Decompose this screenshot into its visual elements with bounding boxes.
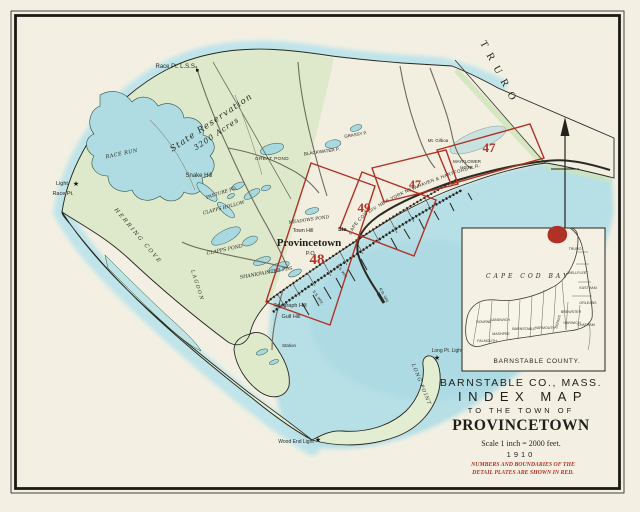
label-race-pt-lss: Race Pt. L.S.S. bbox=[155, 64, 196, 70]
title-index-map: INDEX MAP bbox=[458, 389, 588, 404]
label-telegraph-hill: Telegraph Hill bbox=[273, 303, 306, 309]
title-subtitle: TO THE TOWN OF bbox=[468, 406, 574, 415]
label-town-hill: Town Hill bbox=[293, 228, 314, 234]
wood-end-light-icon: ★ bbox=[315, 436, 321, 444]
label-light: Light bbox=[56, 181, 68, 187]
title-year: 1910 bbox=[507, 450, 536, 459]
map-canvas: CAPE COD DIV. NEW YORK NEW HAVEN & HARTF… bbox=[0, 0, 640, 512]
plate-47a-number: 47 bbox=[483, 140, 497, 155]
label-long-pt-light: Long Pt. Light bbox=[432, 348, 463, 354]
inset-town-wellfleet: WELLFLEET bbox=[568, 271, 590, 275]
title-note-2: DETAIL PLATES ARE SHOWN IN RED. bbox=[471, 470, 574, 476]
label-provincetown: Provincetown bbox=[277, 237, 342, 249]
label-mayflower-1: MAYFLOWER bbox=[453, 159, 481, 164]
title-note-1: NUMBERS AND BOUNDARIES OF THE bbox=[470, 462, 575, 468]
inset-provincetown-highlight bbox=[548, 226, 568, 243]
inset-town-harwich: HARWICH bbox=[563, 321, 581, 325]
title-town: PROVINCETOWN bbox=[452, 417, 589, 434]
plate-47b-number: 47 bbox=[409, 177, 421, 191]
inset-town-mashpee: MASHPEE bbox=[492, 332, 510, 336]
label-great-pond: GREAT POND bbox=[255, 156, 289, 161]
race-point-light-icon: ★ bbox=[73, 180, 79, 188]
inset-town-yarmouth: YARMOUTH bbox=[535, 326, 556, 330]
label-mayflower-2: HGTS. bbox=[460, 165, 473, 170]
label-race-pt: Race Pt. bbox=[52, 191, 74, 197]
inset-town-falmouth: FALMOUTH bbox=[477, 339, 497, 343]
label-po: P.O. bbox=[306, 251, 317, 257]
inset-county-label: BARNSTABLE COUNTY. bbox=[493, 358, 580, 365]
inset-town-sandwich: SANDWICH bbox=[490, 318, 510, 322]
inset-bay-label: CAPE COD BAY bbox=[486, 273, 570, 280]
title-county: BARNSTABLE CO., MASS. bbox=[440, 377, 602, 389]
inset-map: CAPE COD BAY TRURO WELLFLEET EASTHAM ORL… bbox=[462, 226, 605, 371]
inset-town-orleans: ORLEANS bbox=[579, 301, 597, 305]
inset-town-bourne: BOURNE bbox=[476, 320, 492, 324]
inset-town-brewster: BREWSTER bbox=[561, 310, 582, 314]
long-point-light-icon: ★ bbox=[434, 354, 440, 362]
map-sheet: CAPE COD DIV. NEW YORK NEW HAVEN & HARTF… bbox=[0, 0, 640, 512]
inset-town-eastham: EASTHAM bbox=[579, 286, 596, 290]
label-gull-hill: Gull Hill bbox=[282, 314, 301, 320]
inset-town-barnstable: BARNSTABLE bbox=[512, 327, 536, 331]
title-scale: Scale 1 inch = 2000 feet. bbox=[481, 439, 561, 448]
inset-town-truro: TRURO bbox=[569, 247, 582, 251]
label-snake-hill: Snake Hill bbox=[185, 173, 212, 179]
label-sta: Sta. bbox=[338, 227, 349, 233]
label-wood-end-light: Wood End Light bbox=[278, 439, 314, 445]
label-station: Station bbox=[282, 343, 297, 348]
plate-49-number: 49 bbox=[358, 200, 372, 215]
label-mt-gilboa: Mt. Gilboa bbox=[428, 138, 449, 143]
